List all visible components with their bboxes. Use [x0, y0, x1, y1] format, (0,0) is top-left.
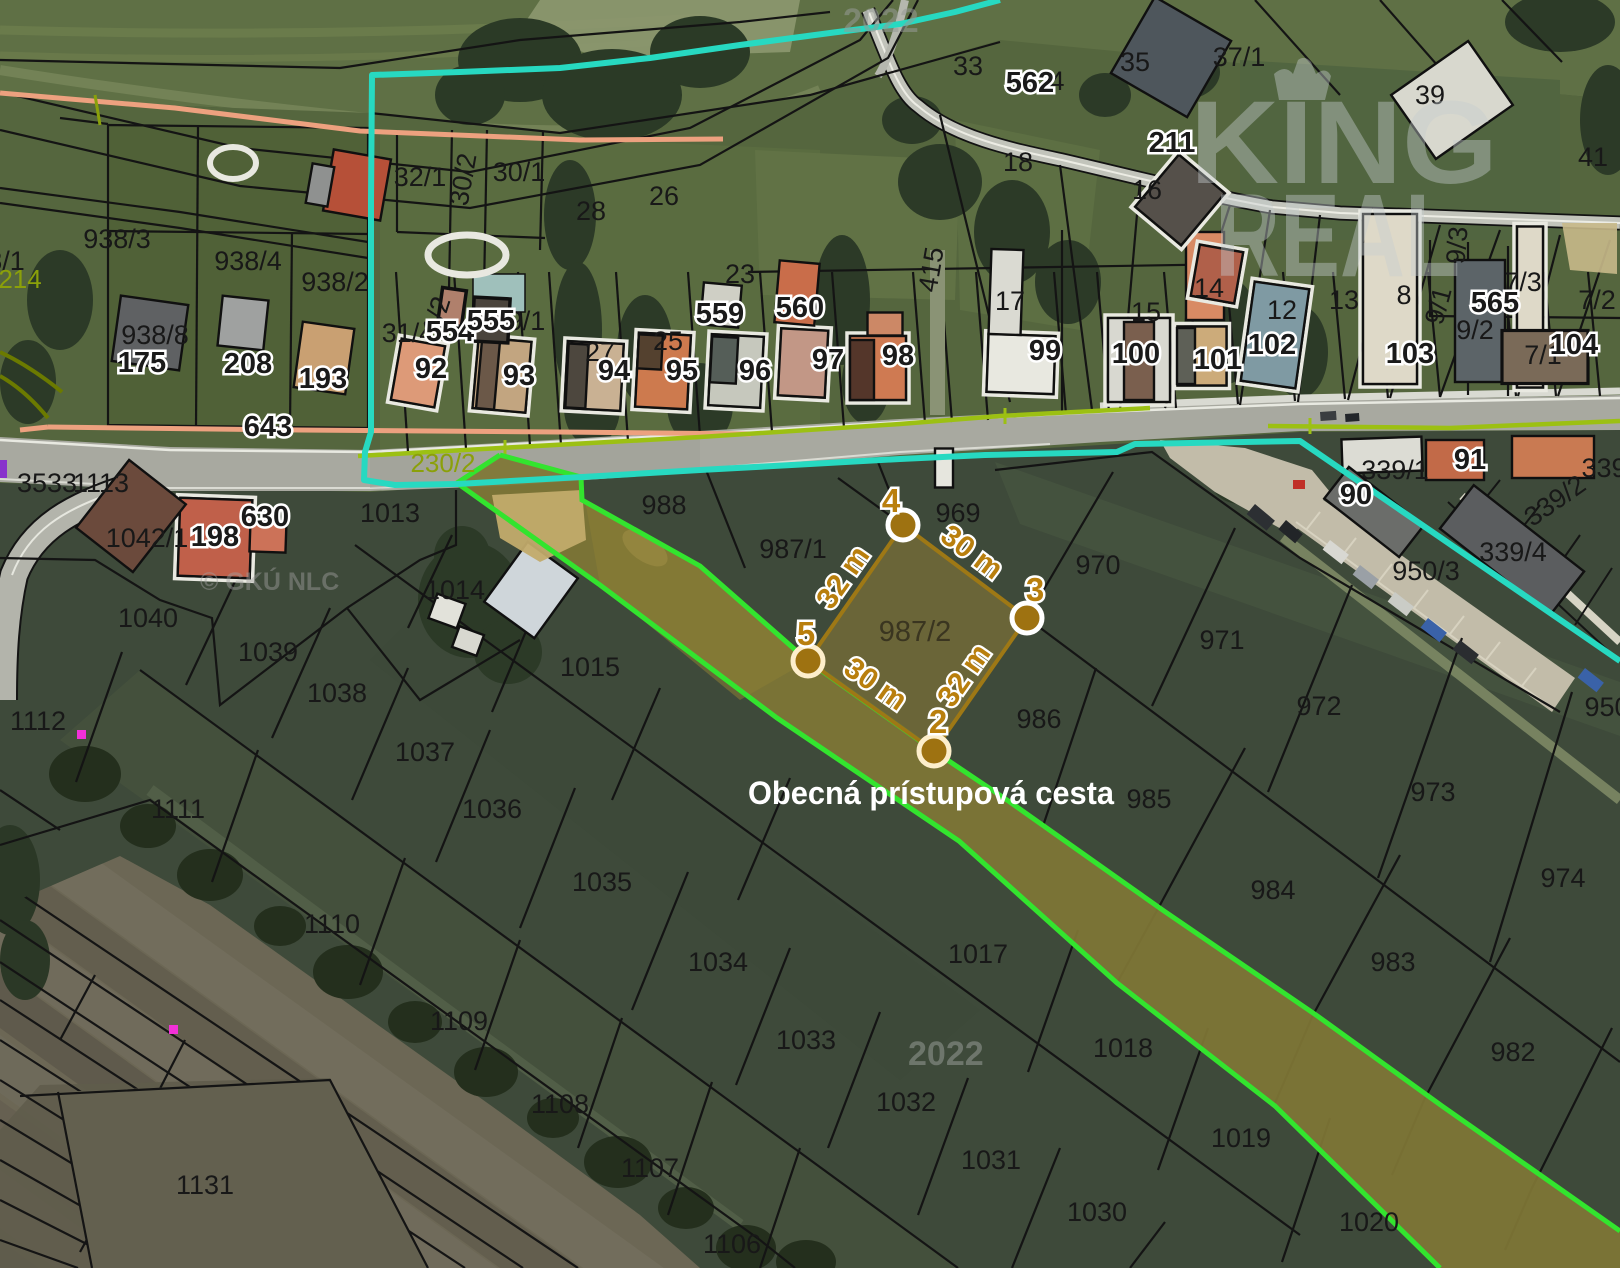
svg-text:23: 23: [725, 259, 755, 289]
svg-text:1034: 1034: [688, 947, 748, 977]
svg-text:1018: 1018: [1093, 1033, 1153, 1063]
svg-text:969: 969: [935, 498, 980, 528]
svg-text:17: 17: [995, 286, 1025, 316]
svg-text:1040: 1040: [118, 603, 178, 633]
svg-text:96: 96: [739, 355, 771, 387]
svg-text:555: 555: [467, 305, 515, 337]
svg-text:4: 4: [882, 482, 901, 519]
svg-text:16: 16: [1132, 175, 1162, 205]
svg-text:938/8: 938/8: [121, 320, 189, 350]
svg-text:99: 99: [1029, 335, 1061, 367]
svg-text:91: 91: [1454, 444, 1486, 476]
svg-text:Obecná prístupová cesta: Obecná prístupová cesta: [748, 775, 1114, 811]
svg-text:5: 5: [797, 615, 815, 652]
svg-text:1017: 1017: [948, 939, 1008, 969]
svg-text:1015: 1015: [560, 652, 620, 682]
svg-text:974: 974: [1540, 863, 1585, 893]
svg-text:175: 175: [118, 347, 166, 379]
svg-text:100: 100: [1112, 338, 1160, 370]
svg-text:92: 92: [415, 353, 447, 385]
svg-text:987/1: 987/1: [759, 534, 827, 564]
svg-text:1030: 1030: [1067, 1197, 1127, 1227]
svg-text:1019: 1019: [1211, 1123, 1271, 1153]
svg-text:93: 93: [503, 360, 535, 392]
svg-text:33: 33: [953, 51, 983, 81]
svg-text:97: 97: [812, 344, 844, 376]
svg-text:103: 103: [1386, 338, 1434, 370]
svg-text:643: 643: [244, 411, 292, 443]
svg-text:1131: 1131: [176, 1170, 234, 1200]
svg-text:970: 970: [1075, 550, 1120, 580]
svg-text:30/1: 30/1: [493, 157, 546, 187]
svg-text:3: 3: [1026, 571, 1044, 608]
svg-text:1035: 1035: [572, 867, 632, 897]
svg-text:90: 90: [1340, 479, 1372, 511]
svg-text:986: 986: [1016, 704, 1061, 734]
svg-text:559: 559: [696, 298, 744, 330]
svg-text:© GKÚ NLC: © GKÚ NLC: [200, 566, 339, 596]
svg-text:28: 28: [576, 196, 606, 226]
svg-text:102: 102: [1248, 329, 1296, 361]
svg-text:985: 985: [1126, 784, 1171, 814]
svg-text:9/2: 9/2: [1456, 315, 1494, 345]
svg-text:1042/1: 1042/1: [106, 523, 189, 553]
svg-text:94: 94: [598, 355, 630, 387]
svg-text:26: 26: [649, 181, 679, 211]
svg-text:95: 95: [666, 355, 698, 387]
svg-text:1106: 1106: [703, 1229, 761, 1259]
svg-text:208: 208: [224, 348, 272, 380]
svg-text:1109: 1109: [430, 1006, 488, 1036]
svg-text:983: 983: [1370, 947, 1415, 977]
svg-text:562: 562: [1006, 67, 1054, 99]
svg-text:7/2: 7/2: [1578, 285, 1616, 315]
svg-text:1036: 1036: [462, 794, 522, 824]
svg-text:565: 565: [1471, 287, 1519, 319]
svg-text:1107: 1107: [621, 1153, 679, 1183]
svg-text:987/2: 987/2: [879, 616, 952, 648]
svg-text:560: 560: [776, 292, 824, 324]
svg-text:1014: 1014: [425, 575, 485, 605]
svg-text:41: 41: [1578, 142, 1608, 172]
svg-text:1038: 1038: [307, 678, 367, 708]
svg-text:1033: 1033: [776, 1025, 836, 1055]
svg-text:1039: 1039: [238, 637, 298, 667]
svg-text:938/4: 938/4: [214, 246, 282, 276]
svg-text:15: 15: [1131, 297, 1161, 327]
svg-text:972: 972: [1296, 691, 1341, 721]
svg-text:1013: 1013: [360, 498, 420, 528]
svg-text:2022: 2022: [843, 2, 919, 40]
svg-text:982: 982: [1490, 1037, 1535, 1067]
svg-text:211: 211: [1149, 127, 1196, 159]
svg-text:1112: 1112: [10, 706, 66, 736]
svg-text:339: 339: [1581, 453, 1620, 483]
svg-text:3533: 3533: [17, 468, 77, 498]
svg-text:25: 25: [653, 326, 683, 356]
svg-text:938/3: 938/3: [83, 224, 151, 254]
svg-text:971: 971: [1199, 625, 1244, 655]
svg-text:2: 2: [929, 703, 947, 740]
svg-text:104: 104: [1550, 329, 1598, 361]
svg-text:18: 18: [1003, 147, 1033, 177]
svg-text:98: 98: [882, 340, 914, 372]
svg-text:1108: 1108: [531, 1089, 589, 1119]
svg-text:1037: 1037: [395, 737, 455, 767]
svg-text:2022: 2022: [908, 1035, 984, 1073]
svg-text:198: 198: [191, 521, 239, 553]
svg-text:37/1: 37/1: [1213, 42, 1266, 72]
svg-text:1113: 1113: [73, 468, 129, 498]
svg-text:101: 101: [1194, 344, 1242, 376]
svg-text:214: 214: [0, 264, 42, 294]
svg-text:1111: 1111: [151, 794, 205, 824]
svg-text:630: 630: [241, 501, 289, 533]
svg-text:1032: 1032: [876, 1087, 936, 1117]
svg-text:REAL: REAL: [1215, 170, 1460, 302]
svg-text:1110: 1110: [304, 909, 360, 939]
svg-text:950: 950: [1584, 692, 1620, 722]
svg-text:973: 973: [1410, 777, 1455, 807]
svg-text:35: 35: [1120, 47, 1150, 77]
svg-text:193: 193: [299, 363, 347, 395]
svg-text:230/2: 230/2: [410, 448, 475, 478]
svg-text:938/2: 938/2: [301, 267, 369, 297]
svg-text:950/3: 950/3: [1392, 556, 1460, 586]
svg-text:32/1: 32/1: [394, 162, 447, 192]
svg-text:339/4: 339/4: [1479, 537, 1547, 567]
svg-text:1020: 1020: [1339, 1207, 1399, 1237]
svg-text:1031: 1031: [961, 1145, 1021, 1175]
svg-text:984: 984: [1250, 875, 1295, 905]
svg-text:988: 988: [641, 490, 686, 520]
